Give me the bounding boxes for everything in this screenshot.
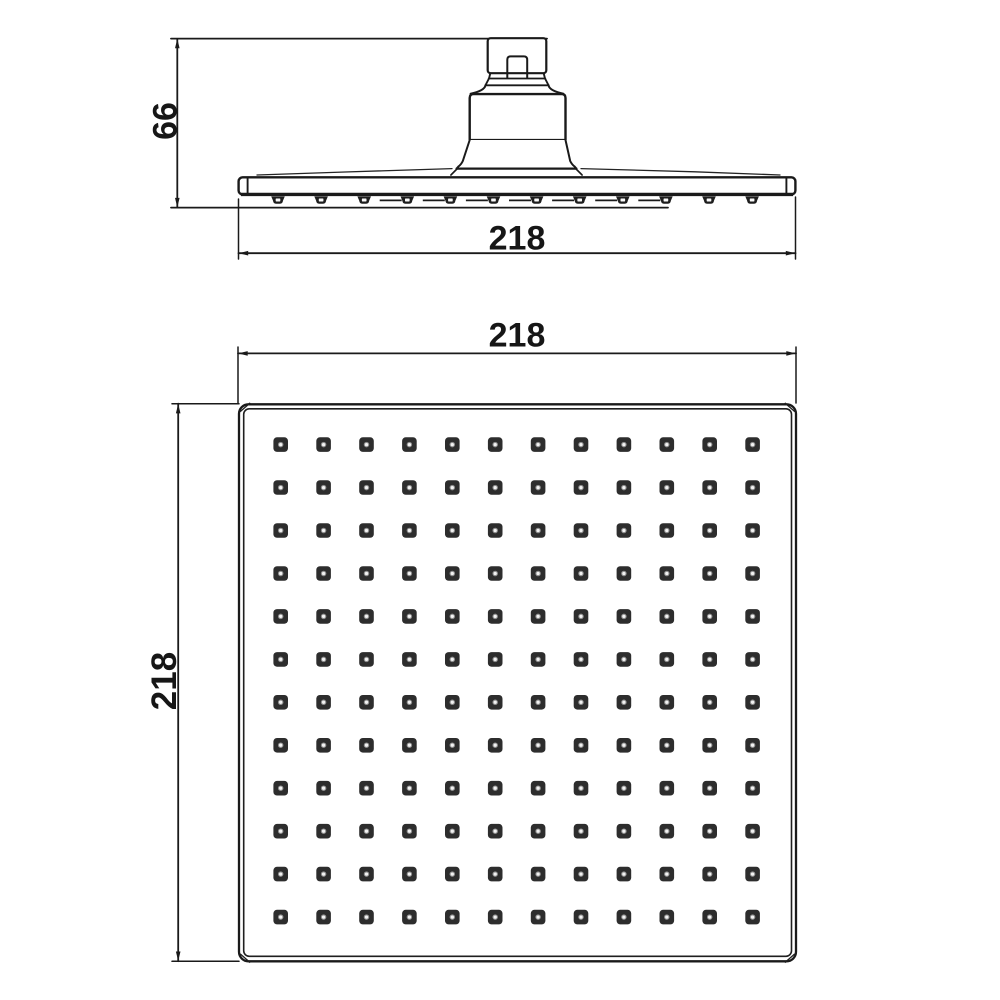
svg-text:218: 218: [489, 220, 546, 258]
svg-text:218: 218: [489, 317, 546, 355]
svg-text:66: 66: [146, 102, 184, 140]
svg-text:218: 218: [145, 652, 184, 710]
